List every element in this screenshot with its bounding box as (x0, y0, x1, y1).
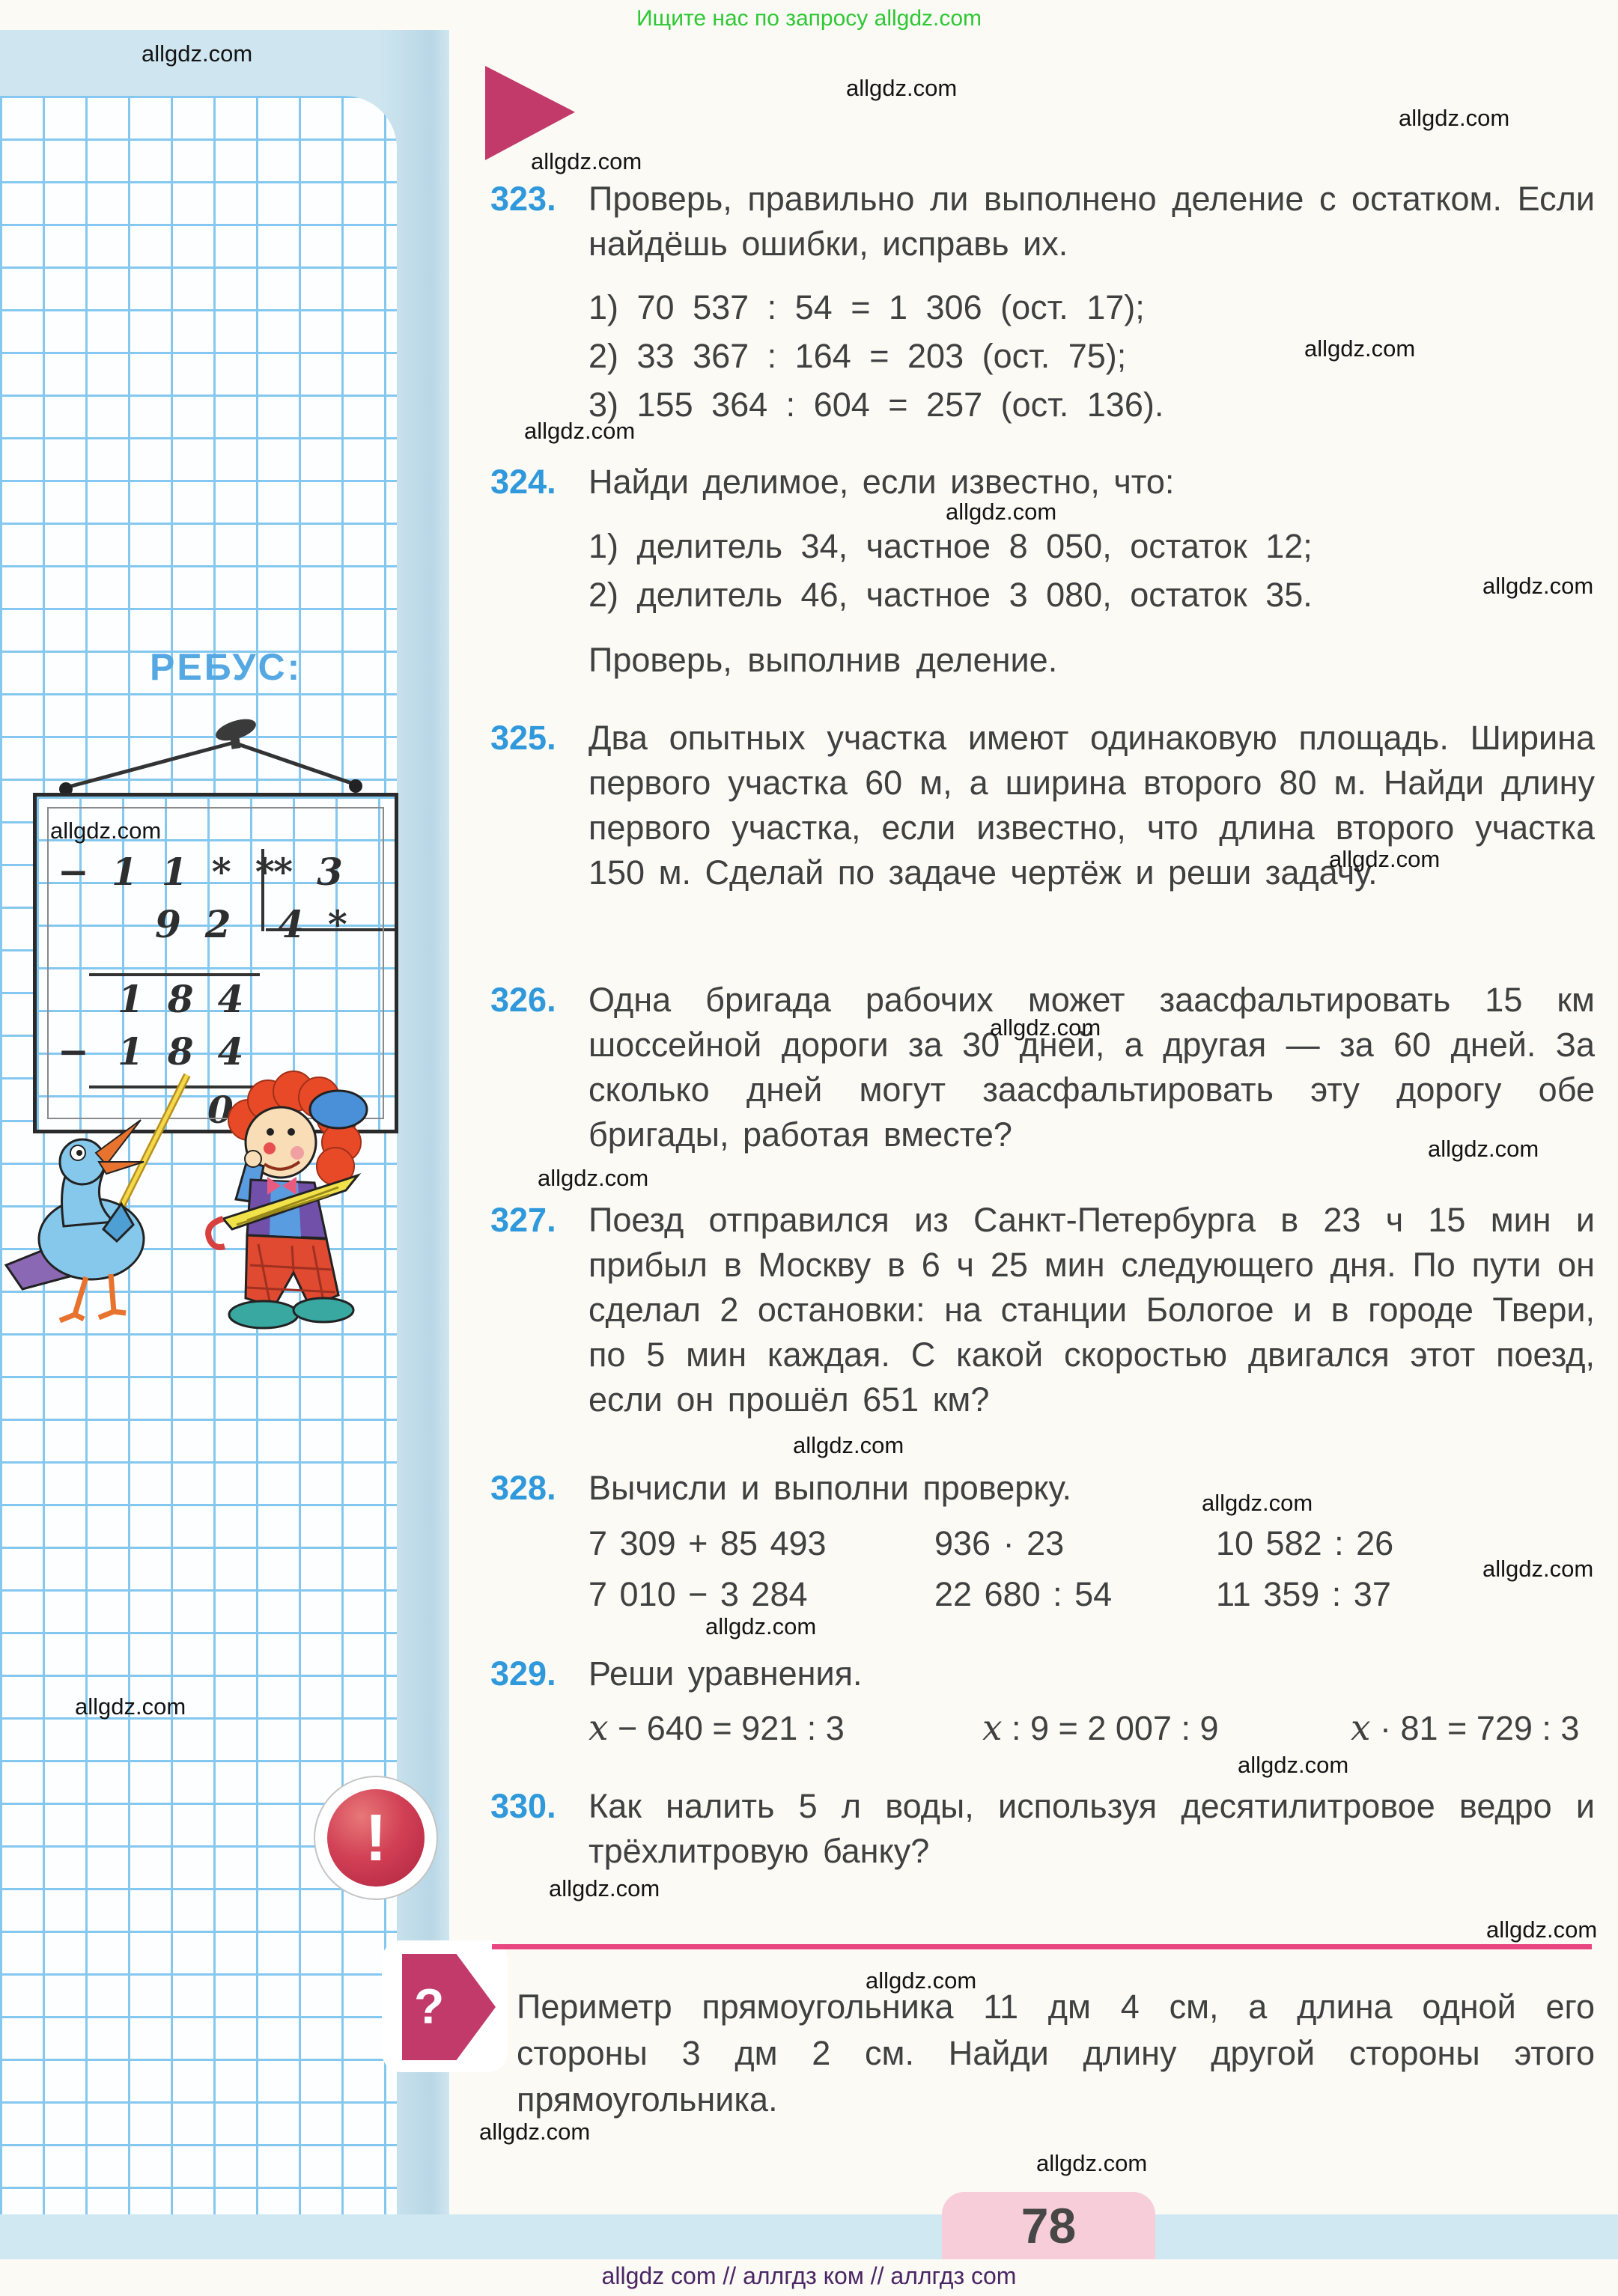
rebus-product-1: 184 (118, 981, 267, 1018)
rebus-quotient: 4* (278, 906, 371, 943)
expression-row: 7 010 − 3 284 22 680 : 54 11 359 : 37 (588, 1569, 1595, 1620)
problem-item: 1) делитель 34, частное 8 050, остаток 1… (588, 522, 1595, 570)
problem-number: 330. (490, 1784, 556, 1829)
page-number-tab: 78 (942, 2192, 1155, 2259)
expression: 10 582 : 26 (1216, 1518, 1393, 1569)
problem-number: 324. (490, 460, 556, 505)
watermark: allgdz.com (531, 148, 642, 175)
expression: 936 · 23 (934, 1518, 1216, 1569)
section-divider (492, 1944, 1592, 1949)
clown-illustration (0, 1048, 419, 1348)
problem-item: 2) 33 367 : 164 = 203 (ост. 75); (588, 332, 1595, 380)
watermark: allgdz.com (50, 817, 161, 844)
watermark: allgdz.com (75, 1693, 186, 1720)
rebus-line-2 (89, 973, 260, 976)
problem-number: 328. (490, 1466, 556, 1511)
equation-row: x − 640 = 921 : 3 x : 9 = 2 007 : 9 x · … (588, 1704, 1595, 1753)
watermark: allgdz.com (1329, 846, 1440, 873)
problem-item: 3) 155 364 : 604 = 257 (ост. 136). (588, 380, 1595, 429)
expression-row: 7 309 + 85 493 936 · 23 10 582 : 26 (588, 1518, 1595, 1569)
watermark: allgdz.com (1428, 1136, 1539, 1163)
expression: 11 359 : 37 (1216, 1569, 1391, 1620)
section-triangle-icon (485, 66, 575, 160)
watermark: allgdz.com (705, 1613, 816, 1640)
problem-number: 323. (490, 177, 556, 222)
equation: x − 640 = 921 : 3 (588, 1704, 982, 1753)
problem-text: Вычисли и выполни проверку. (588, 1466, 1595, 1511)
watermark: allgdz.com (866, 1967, 976, 1994)
bottom-band (0, 2214, 1618, 2259)
problem-text: Одна бригада рабочих может заасфальтиров… (588, 978, 1595, 1157)
equation: x · 81 = 729 : 3 (1351, 1704, 1579, 1753)
problem-followup: Проверь, выполнив деление. (588, 638, 1595, 683)
problem-323: 323. Проверь, правильно ли выполнено дел… (490, 177, 1595, 429)
problem-number: 327. (490, 1198, 556, 1243)
problem-327: 327. Поезд отправился из Санкт-Петербург… (490, 1198, 1595, 1422)
pin-right (349, 779, 362, 793)
watermark: allgdz.com (990, 1014, 1101, 1041)
watermark: allgdz.com (142, 40, 252, 67)
final-problem-text: Периметр прямоугольника 11 дм 4 см, а дл… (517, 1984, 1595, 2123)
watermark: allgdz.com (1202, 1490, 1313, 1517)
watermark: allgdz.com (1036, 2150, 1147, 2177)
watermark: allgdz.com (1399, 105, 1509, 132)
problem-text: Как налить 5 л воды, используя десятилит… (588, 1784, 1595, 1874)
problem-number: 326. (490, 978, 556, 1023)
rebus-dividend: 11** (112, 853, 299, 891)
watermark: allgdz.com (1238, 1752, 1348, 1779)
rebus-minus-1: − (58, 853, 113, 891)
problem-text: Поезд отправился из Санкт-Петербурга в 2… (588, 1198, 1595, 1422)
watermark: allgdz.com (524, 418, 635, 445)
expression: 22 680 : 54 (934, 1569, 1216, 1620)
promo-header: Ищите нас по запросу allgdz.com (0, 6, 1618, 31)
watermark: allgdz.com (1486, 1916, 1597, 1943)
watermark: allgdz.com (549, 1875, 660, 1902)
rebus-divisor: *3 (273, 853, 367, 891)
rebus-title: РЕБУС: (150, 645, 302, 689)
problem-number: 329. (490, 1651, 556, 1696)
clown-beret (310, 1091, 367, 1128)
watermark: allgdz.com (846, 75, 957, 102)
watermark: allgdz.com (538, 1165, 648, 1192)
footer-text: allgdz com // аллгдз ком // аллгдз com (0, 2262, 1618, 2290)
problem-329: 329. Реши уравнения. x − 640 = 921 : 3 x… (490, 1651, 1595, 1753)
problem-328: 328. Вычисли и выполни проверку. 7 309 +… (490, 1466, 1595, 1620)
rebus-division-bar (261, 849, 264, 931)
watermark: allgdz.com (946, 499, 1056, 526)
watermark: allgdz.com (1304, 335, 1415, 362)
page-number: 78 (1021, 2197, 1076, 2254)
problem-text: Реши уравнения. (588, 1651, 1595, 1696)
clown-shoe-left (229, 1301, 298, 1328)
equation: x : 9 = 2 007 : 9 (982, 1704, 1351, 1753)
rebus-partial-1: 92 (155, 906, 255, 943)
problem-330: 330. Как налить 5 л воды, используя деся… (490, 1784, 1595, 1874)
expression: 7 010 − 3 284 (588, 1569, 934, 1620)
watermark: allgdz.com (793, 1432, 904, 1459)
problem-text: Проверь, правильно ли выполнено деление … (588, 177, 1595, 267)
problem-326: 326. Одна бригада рабочих может заасфаль… (490, 978, 1595, 1157)
problem-324: 324. Найди делимое, если известно, что: … (490, 460, 1595, 683)
expression: 7 309 + 85 493 (588, 1518, 934, 1569)
problem-item: 2) делитель 46, частное 3 080, остаток 3… (588, 570, 1595, 619)
problem-number: 325. (490, 716, 556, 761)
problem-item: 1) 70 537 : 54 = 1 306 (ост. 17); (588, 283, 1595, 332)
watermark: allgdz.com (1482, 573, 1593, 600)
problem-text: Два опытных участка имеют одинаковую пло… (588, 716, 1595, 895)
watermark: allgdz.com (479, 2119, 590, 2146)
watermark: allgdz.com (1482, 1556, 1593, 1583)
exclamation-icon: ! (327, 1789, 425, 1887)
problem-text: Найди делимое, если известно, что: (588, 460, 1595, 505)
clown-shoe-right (294, 1298, 353, 1322)
